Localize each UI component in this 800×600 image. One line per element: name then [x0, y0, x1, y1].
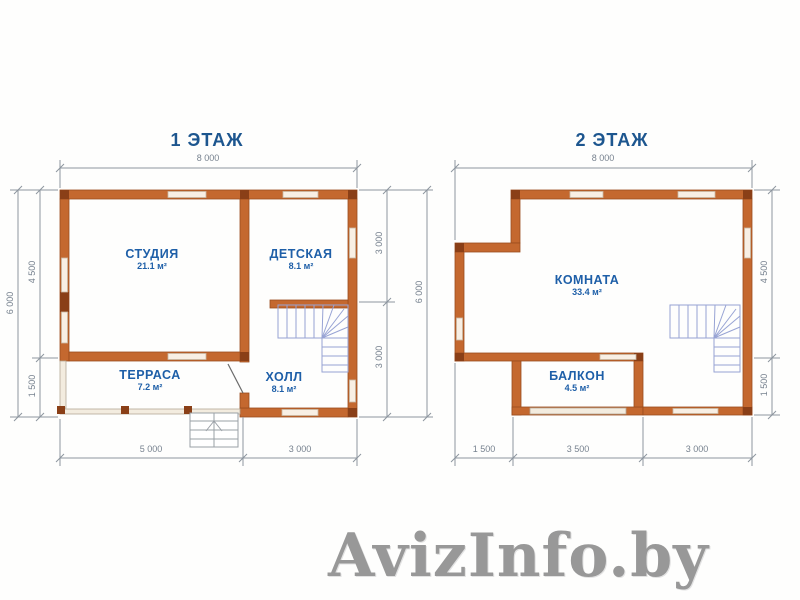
dim-p1-left-upper: 4 500 — [27, 242, 39, 302]
watermark-text: AvizInfo.by — [328, 524, 798, 588]
plan1-title: 1 ЭТАЖ — [147, 130, 267, 151]
room-label-hall: ХОЛЛ 8.1 м² — [244, 371, 324, 395]
floor-plan-graphics — [0, 0, 800, 600]
room-name: СТУДИЯ — [102, 248, 202, 261]
room-name: БАЛКОН — [527, 370, 627, 383]
room-area: 4.5 м² — [527, 383, 627, 394]
plan2-dimension-lines — [451, 160, 780, 466]
floor-plan-drawing: 1 ЭТАЖ 2 ЭТАЖ СТУДИЯ 21.1 м² ДЕТСКАЯ 8.1… — [0, 0, 800, 600]
plan1-door — [228, 364, 243, 393]
room-label-kids: ДЕТСКАЯ 8.1 м² — [251, 248, 351, 272]
dim-p1-left-lower: 1 500 — [27, 356, 39, 416]
dim-p2-right-lower: 1 500 — [759, 355, 771, 415]
dim-p2-bottom-right: 3 000 — [667, 444, 727, 456]
room-label-terrace: ТЕРРАСА 7.2 м² — [100, 369, 200, 393]
dim-p2-right-upper: 4 500 — [759, 242, 771, 302]
dim-p1-bottom-right: 3 000 — [270, 444, 330, 456]
plan1-stairs-icon — [278, 305, 348, 372]
dim-p2-bottom-mid: 3 500 — [548, 444, 608, 456]
plan1-porch-icon — [190, 413, 238, 447]
room-area: 21.1 м² — [102, 261, 202, 272]
plan2-balcony-railing — [530, 408, 626, 414]
dim-p1-left-outer: 6 000 — [5, 273, 17, 333]
room-area: 8.1 м² — [244, 384, 324, 395]
plan2-title: 2 ЭТАЖ — [552, 130, 672, 151]
room-area: 8.1 м² — [251, 261, 351, 272]
dim-p2-bottom-left: 1 500 — [454, 444, 514, 456]
dim-p2-top: 8 000 — [573, 153, 633, 165]
room-name: КОМНАТА — [537, 274, 637, 287]
room-name: ДЕТСКАЯ — [251, 248, 351, 261]
dim-p1-bottom-left: 5 000 — [121, 444, 181, 456]
dim-p1-top: 8 000 — [178, 153, 238, 165]
room-area: 7.2 м² — [100, 382, 200, 393]
room-area: 33.4 м² — [537, 287, 637, 298]
plan2-stairs-icon — [670, 305, 740, 372]
room-label-room: КОМНАТА 33.4 м² — [537, 274, 637, 298]
dim-p1-right-outer: 6 000 — [414, 262, 426, 322]
room-name: ХОЛЛ — [244, 371, 324, 384]
room-label-studio: СТУДИЯ 21.1 м² — [102, 248, 202, 272]
room-name: ТЕРРАСА — [100, 369, 200, 382]
room-label-balcony: БАЛКОН 4.5 м² — [527, 370, 627, 394]
dim-p1-right-upper: 3 000 — [374, 213, 386, 273]
dim-p1-right-lower: 3 000 — [374, 327, 386, 387]
